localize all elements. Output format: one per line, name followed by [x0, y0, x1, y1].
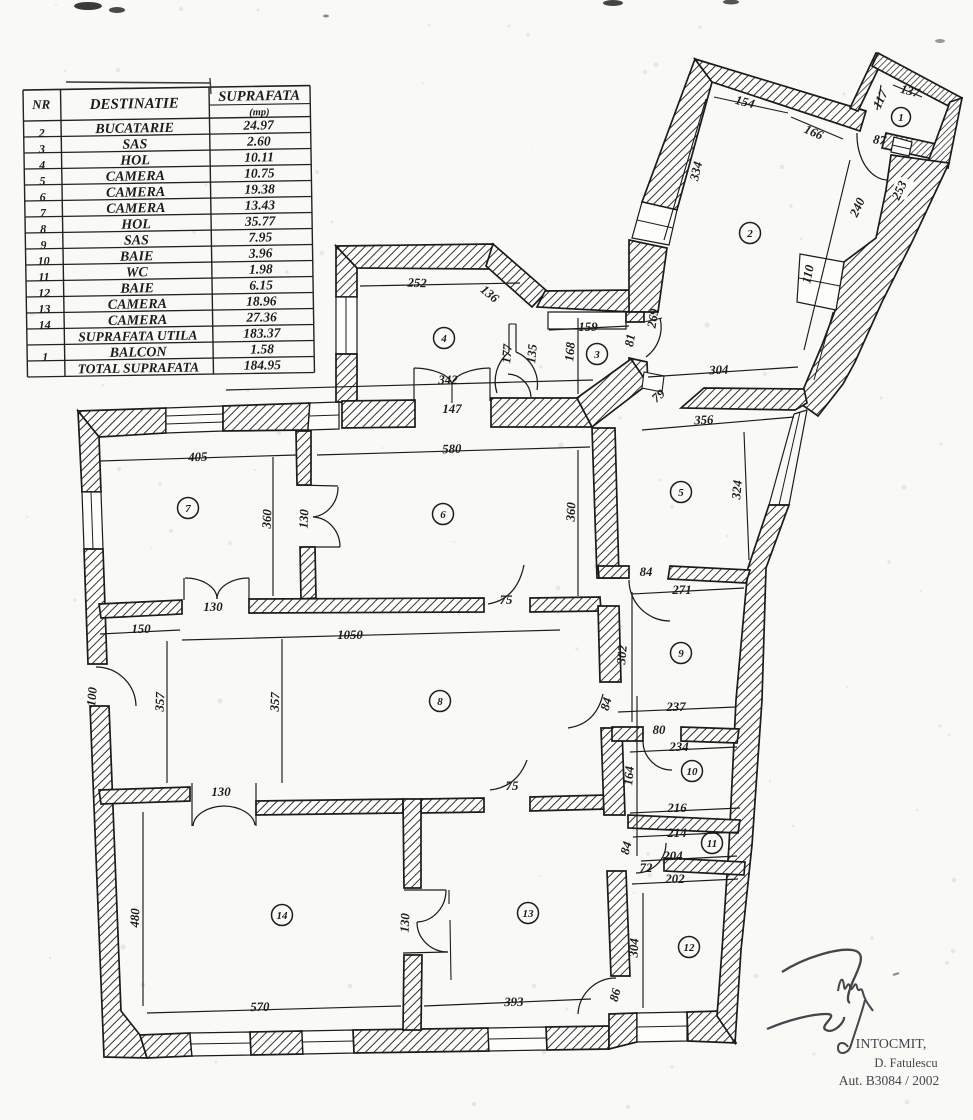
svg-text:12: 12	[38, 286, 50, 300]
svg-text:14: 14	[277, 910, 289, 922]
svg-text:135: 135	[524, 343, 540, 364]
svg-text:183.37: 183.37	[243, 325, 282, 341]
svg-text:SAS: SAS	[124, 233, 149, 248]
svg-text:237: 237	[665, 700, 686, 714]
svg-text:12: 12	[684, 942, 696, 954]
svg-text:CAMERA: CAMERA	[106, 169, 165, 185]
svg-text:13: 13	[523, 908, 535, 920]
svg-text:4: 4	[440, 333, 447, 345]
svg-text:10.75: 10.75	[244, 165, 275, 180]
svg-text:8: 8	[40, 222, 46, 236]
svg-text:3: 3	[38, 142, 45, 156]
svg-text:72: 72	[640, 861, 653, 875]
svg-text:304: 304	[626, 937, 641, 959]
svg-text:18.96: 18.96	[246, 293, 277, 308]
svg-text:11: 11	[707, 838, 717, 850]
svg-text:271: 271	[671, 583, 691, 597]
svg-text:4: 4	[38, 158, 45, 172]
svg-text:1050: 1050	[337, 628, 363, 642]
svg-text:10: 10	[38, 254, 50, 268]
svg-text:177: 177	[499, 343, 515, 364]
svg-text:216: 216	[666, 801, 687, 815]
svg-text:356: 356	[693, 413, 714, 428]
svg-text:100: 100	[84, 686, 100, 707]
svg-text:3: 3	[593, 349, 600, 361]
svg-text:13: 13	[38, 302, 50, 316]
svg-text:6: 6	[40, 190, 46, 204]
svg-text:360: 360	[259, 508, 274, 530]
svg-text:184.95: 184.95	[244, 357, 282, 373]
svg-text:357: 357	[267, 691, 282, 713]
svg-text:SUPRAFATA UTILA: SUPRAFATA UTILA	[78, 328, 197, 345]
svg-text:234: 234	[668, 740, 689, 754]
svg-text:6.15: 6.15	[249, 277, 273, 292]
svg-text:81: 81	[622, 333, 638, 348]
svg-text:CAMERA: CAMERA	[106, 201, 165, 217]
svg-text:5: 5	[678, 487, 684, 499]
svg-text:11: 11	[38, 270, 50, 284]
svg-text:CAMERA: CAMERA	[106, 185, 165, 201]
svg-text:19.38: 19.38	[244, 181, 275, 196]
svg-text:87: 87	[872, 132, 887, 148]
svg-text:35.77: 35.77	[244, 213, 277, 229]
svg-text:3.96: 3.96	[248, 245, 273, 260]
svg-text:304: 304	[708, 363, 729, 378]
svg-text:1.98: 1.98	[249, 261, 273, 276]
svg-text:6: 6	[440, 509, 446, 521]
svg-text:580: 580	[442, 442, 462, 457]
svg-text:2: 2	[746, 228, 753, 240]
svg-text:CAMERA: CAMERA	[108, 297, 167, 313]
svg-text:168: 168	[562, 341, 578, 362]
svg-text:570: 570	[250, 1000, 270, 1014]
svg-text:7: 7	[185, 503, 191, 515]
svg-text:SAS: SAS	[122, 137, 147, 152]
svg-text:TOTAL SUPRAFATA: TOTAL SUPRAFATA	[78, 360, 200, 377]
svg-text:130: 130	[297, 508, 312, 529]
svg-text:130: 130	[398, 912, 413, 933]
svg-text:BUCATARIE: BUCATARIE	[94, 121, 174, 137]
svg-text:302: 302	[614, 644, 630, 666]
svg-text:252: 252	[406, 276, 427, 291]
svg-text:75: 75	[500, 593, 513, 607]
svg-text:13.43: 13.43	[245, 197, 276, 212]
svg-text:9: 9	[678, 648, 684, 660]
svg-text:10: 10	[687, 766, 699, 778]
svg-text:357: 357	[152, 691, 167, 713]
svg-text:HOL: HOL	[119, 153, 150, 168]
svg-text:10.11: 10.11	[244, 149, 274, 164]
svg-text:342: 342	[437, 373, 458, 387]
svg-text:147: 147	[442, 402, 462, 416]
svg-text:7.95: 7.95	[248, 229, 272, 244]
svg-text:BAIE: BAIE	[119, 281, 154, 297]
svg-text:80: 80	[653, 723, 666, 737]
svg-text:130: 130	[211, 785, 231, 799]
svg-text:214: 214	[666, 826, 687, 840]
svg-text:WC: WC	[126, 265, 149, 280]
svg-text:BALCON: BALCON	[109, 345, 168, 361]
svg-text:CAMERA: CAMERA	[108, 313, 167, 329]
svg-text:130: 130	[203, 600, 223, 614]
svg-text:INTOCMIT,: INTOCMIT,	[856, 1037, 927, 1052]
svg-text:2: 2	[38, 126, 45, 140]
svg-text:75: 75	[506, 779, 519, 793]
svg-text:480: 480	[128, 907, 143, 928]
svg-text:27.36: 27.36	[245, 309, 277, 324]
svg-text:BAIE: BAIE	[119, 249, 154, 265]
svg-text:DESTINATIE: DESTINATIE	[89, 96, 179, 113]
svg-text:1: 1	[42, 350, 48, 364]
svg-text:1: 1	[898, 112, 904, 124]
svg-text:HOL: HOL	[120, 217, 151, 232]
svg-text:204: 204	[662, 849, 683, 863]
svg-text:164: 164	[621, 765, 637, 786]
svg-text:84: 84	[640, 565, 653, 579]
svg-text:24.97: 24.97	[242, 117, 275, 133]
svg-text:NR: NR	[31, 97, 51, 112]
svg-text:2.60: 2.60	[246, 133, 271, 148]
svg-text:14: 14	[39, 318, 51, 332]
svg-text:150: 150	[131, 622, 151, 636]
svg-text:360: 360	[563, 501, 578, 523]
svg-text:393: 393	[503, 995, 524, 1009]
svg-text:8: 8	[437, 696, 443, 708]
svg-text:159: 159	[578, 320, 598, 334]
svg-text:405: 405	[187, 450, 208, 465]
svg-text:5: 5	[39, 174, 45, 188]
svg-text:D. Fatulescu: D. Fatulescu	[874, 1056, 938, 1070]
svg-text:324: 324	[729, 479, 745, 501]
svg-text:9: 9	[40, 238, 46, 252]
svg-text:SUPRAFATA: SUPRAFATA	[218, 88, 300, 105]
svg-text:1.58: 1.58	[250, 341, 274, 356]
svg-text:202: 202	[664, 872, 685, 886]
svg-text:Aut. B3084 / 2002: Aut. B3084 / 2002	[839, 1073, 940, 1088]
